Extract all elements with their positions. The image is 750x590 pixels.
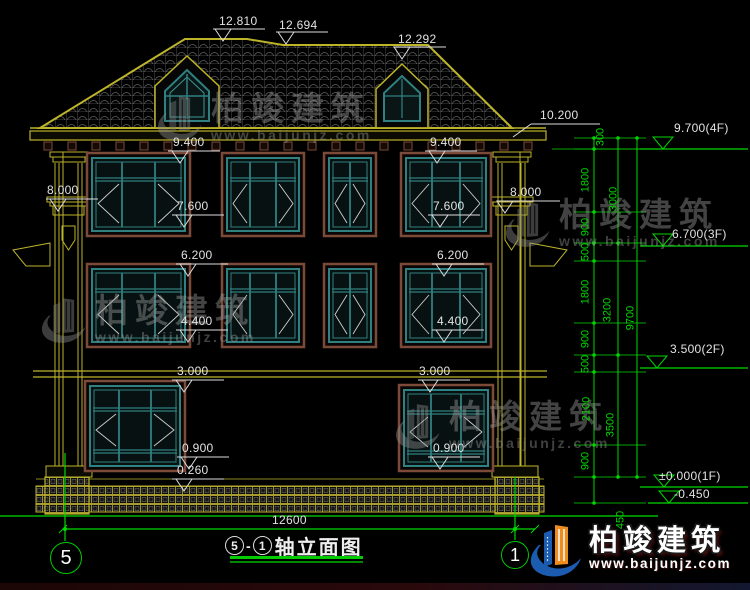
title-separator: - [246,538,251,554]
title-axis-start: 5 [225,536,244,555]
dim-7600-right: 7.600 [433,200,465,212]
brand-logo: 柏竣建筑 www.baijunjz.com [524,518,731,580]
dim-9400-left: 9.400 [173,136,205,148]
level-basement: -0.450 [674,488,710,500]
level-1f: ±0.000(1F) [659,470,721,482]
chain-2100: 2100 [582,397,593,421]
brand-name: 柏竣建筑 [589,526,731,556]
chain-3200: 3200 [603,298,614,322]
bottom-banner-strip [0,583,750,590]
watermark: 柏竣建筑 www.baijunjz.com [36,292,256,346]
dim-3000-right: 3.000 [419,365,451,377]
chain-3000: 3000 [609,187,620,211]
dim-6200-left: 6.200 [181,249,213,261]
column-base-left [45,477,89,514]
window [401,153,491,236]
dim-3000-left: 3.000 [177,365,209,377]
watermark: 柏竣建筑 www.baijunjz.com [390,398,610,452]
dim-4400-right: 4.400 [437,315,469,327]
level-4f: 9.700(4F) [674,122,729,134]
title-axis-end: 1 [253,536,272,555]
chain-300: 300 [596,128,607,146]
watermark-logo-icon [36,292,88,346]
dim-4400-left: 4.400 [181,315,213,327]
dim-total-width: 12600 [272,514,307,526]
chain-3500: 3500 [606,413,617,437]
window [87,153,190,236]
dim-dormer-peak: 12.292 [398,33,437,45]
chain-1800a: 1800 [581,168,592,192]
chain-500b: 500 [581,355,592,373]
window [222,153,304,236]
brand-url: www.baijunjz.com [589,557,731,572]
chain-900b: 900 [581,330,592,348]
dim-ridge-mid: 12.694 [279,19,318,31]
dim-0900-right: 0.900 [433,442,465,454]
window [85,381,185,471]
title-underline-2 [230,561,363,563]
chain-1800b: 1800 [581,280,592,304]
dim-6200-right: 6.200 [437,249,469,261]
dim-eave: 10.200 [540,109,579,121]
chain-500a: 500 [581,243,592,261]
level-symbol-triangles [647,137,679,503]
brick-base [36,486,544,512]
dim-ridge-high: 12.810 [219,15,258,27]
dim-8000-right: 8.000 [510,186,542,198]
title-underline [230,556,363,559]
window [324,264,376,347]
window [324,153,376,236]
grid-bubble-5: 5 [50,542,82,574]
chain-9700: 9700 [626,306,637,330]
cad-elevation-canvas: 12.810 12.694 12.292 10.200 9.400 9.400 … [0,0,750,590]
column-base-right [495,477,539,514]
dim-9400-right: 9.400 [430,136,462,148]
window [401,264,491,347]
chain-900a: 900 [581,218,592,236]
brand-logo-icon [524,518,584,580]
dim-0260: 0.260 [177,464,209,476]
dim-8000-left: 8.000 [47,184,79,196]
dim-0900-left: 0.900 [182,442,214,454]
dim-7600-left: 7.600 [177,200,209,212]
level-3f: 6.700(3F) [672,228,727,240]
chain-900c: 900 [581,452,592,470]
level-2f: 3.500(2F) [670,343,725,355]
watermark-logo-icon [500,196,552,250]
